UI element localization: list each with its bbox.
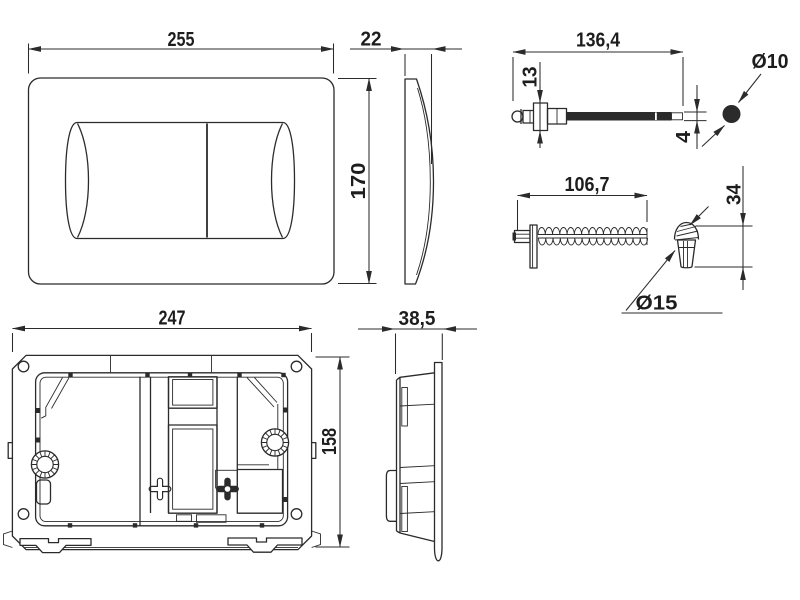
spring-clevis <box>515 231 531 243</box>
screw-hole <box>291 509 302 520</box>
cone-diameter-label: Ø15 <box>636 293 678 315</box>
knurled-knob-left <box>31 451 58 478</box>
plate-width-label: 255 <box>168 29 195 51</box>
button-panel-outline <box>66 123 295 239</box>
plate-profile-inner <box>417 88 431 275</box>
plate-front-view: 255 170 <box>29 29 377 284</box>
corner-rib-right <box>247 378 277 407</box>
plate-profile <box>405 79 434 284</box>
screw-hole <box>18 509 29 520</box>
plate-depth-label: 22 <box>361 29 382 51</box>
frame-edge-ticks <box>36 373 288 528</box>
cone-knob <box>675 223 699 268</box>
frame-height-label: 158 <box>319 428 341 455</box>
bottom-clip-left <box>20 539 91 553</box>
screw-hole <box>18 361 29 372</box>
lower-box <box>169 425 218 513</box>
dim-plate-height: 170 <box>338 79 377 284</box>
dim-rod-tip: 4 <box>673 85 707 149</box>
rod-diameter-label: Ø10 <box>752 51 789 73</box>
rod-end-circle <box>723 105 741 123</box>
dim-frame-width: 247 <box>13 308 312 353</box>
dim-cone-diameter: Ø15 <box>622 207 723 315</box>
dim-frame-depth: 38,5 <box>358 308 477 374</box>
left-slot <box>37 480 51 504</box>
dim-plate-width: 255 <box>29 29 334 74</box>
right-box <box>237 470 282 514</box>
drawing-canvas: 255 170 22 <box>0 0 800 600</box>
inner-frame <box>36 373 288 526</box>
spring-length-label: 106,7 <box>565 174 610 196</box>
plate-outline <box>29 78 335 284</box>
spring-pin <box>530 225 537 268</box>
corner-rib-left <box>41 378 69 419</box>
spring-view: 106,7 34 Ø <box>513 166 753 315</box>
dim-spring-length: 106,7 <box>518 174 648 231</box>
wall-flange <box>435 363 443 561</box>
cone-height-label: 34 <box>724 183 746 205</box>
rod-head-height-label: 13 <box>520 67 542 88</box>
spring-coils <box>538 227 648 245</box>
left-lens-curve <box>78 124 89 238</box>
right-lens-curve <box>272 124 283 238</box>
upper-box <box>169 377 218 408</box>
cross-screw-left <box>149 478 171 500</box>
knurled-knob-right <box>261 429 288 456</box>
frame-depth-label: 38,5 <box>399 308 436 330</box>
rod-tip <box>672 113 683 120</box>
rod-tip-diameter-label: 4 <box>673 130 695 143</box>
frame-width-label: 247 <box>159 308 186 330</box>
rod-length-label: 136,4 <box>576 30 621 52</box>
frame-side-view: 38,5 <box>358 308 477 561</box>
dim-cone-height: 34 <box>695 166 753 290</box>
screw-hole <box>291 361 302 372</box>
push-rod-view: 136,4 13 4 Ø10 <box>512 30 789 150</box>
rod-end-view: Ø10 <box>702 51 789 147</box>
top-connectors <box>111 356 212 373</box>
side-clip <box>386 471 396 522</box>
technical-drawing-sheet: 255 170 22 <box>0 0 800 600</box>
dim-frame-height: 158 <box>316 357 350 547</box>
frame-rear-view: 247 158 <box>4 308 350 553</box>
dim-plate-depth: 22 <box>350 29 462 165</box>
plate-side-view: 22 <box>350 29 462 285</box>
plate-height-label: 170 <box>348 163 370 200</box>
